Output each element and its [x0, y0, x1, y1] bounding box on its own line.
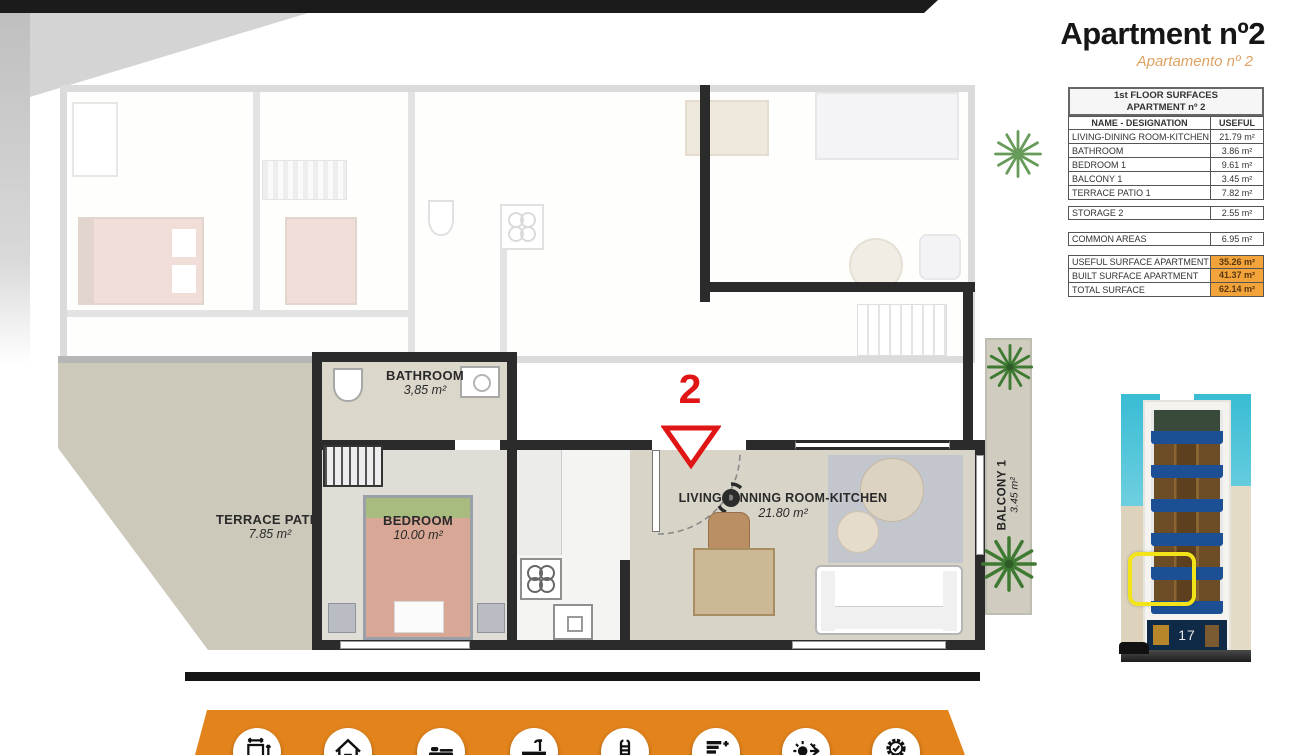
storage-row: STORAGE 2 2.55 m² — [1068, 206, 1264, 220]
building-elevation-thumbnail: 17 — [1115, 388, 1257, 672]
table-row: TERRACE PATIO 1 7.82 m² — [1068, 186, 1264, 200]
page-title: Apartment nº2 — [885, 16, 1265, 52]
house-icon — [332, 735, 364, 755]
building-floor — [1151, 512, 1223, 546]
building-floor — [1151, 410, 1223, 444]
surface-dimensions-icon — [241, 735, 273, 755]
title-block: Apartment nº2 Apartamento nº 2 — [885, 16, 1265, 70]
bathtub-icon — [518, 735, 550, 755]
ground-floor: 17 — [1147, 620, 1227, 650]
nightstand — [328, 603, 356, 633]
surfaces-header-line1: 1st FLOOR SURFACES — [1070, 90, 1262, 102]
unit-number-marker: 2 — [662, 367, 718, 411]
total-row-built: BUILT SURFACE APARTMENT 41.37 m² — [1068, 269, 1264, 283]
bathroom-label: BATHROOM 3,85 m² — [335, 368, 515, 398]
shop-window — [1153, 625, 1169, 645]
building-floor — [1151, 444, 1223, 478]
highlighted-unit-box — [1128, 552, 1196, 606]
stove — [520, 558, 562, 600]
page-subtitle: Apartamento nº 2 — [885, 53, 1265, 70]
floor-plan: TERRACE PATIO 7.85 m² BATHROOM — [45, 75, 1037, 663]
entrance-triangle-marker — [661, 425, 721, 469]
surfaces-columns-row: NAME - DESIGNATION USEFUL — [1068, 116, 1264, 130]
kitchen-cabinets — [517, 450, 562, 555]
table-row: BATHROOM 3.86 m² — [1068, 144, 1264, 158]
corner-decoration-strip — [0, 13, 30, 365]
fade-overlay — [60, 85, 975, 363]
nightstand — [477, 603, 505, 633]
surfaces-table: 1st FLOOR SURFACES APARTMENT nº 2 NAME -… — [1068, 87, 1264, 297]
bed-icon — [425, 735, 457, 755]
common-areas-row: COMMON AREAS 6.95 m² — [1068, 232, 1264, 246]
plan-sheet: Apartment nº2 Apartamento nº 2 1st FLOOR… — [0, 0, 1290, 755]
total-row-useful: USEFUL SURFACE APARTMENT 35.26 m² — [1068, 255, 1264, 269]
col-useful: USEFUL — [1211, 118, 1263, 128]
entrance-door — [1205, 625, 1219, 647]
street-number: 17 — [1178, 627, 1196, 643]
wardrobe-hatch — [323, 445, 383, 487]
total-row-total: TOTAL SURFACE 62.14 m² — [1068, 283, 1264, 297]
sofa — [815, 565, 963, 635]
footer-divider-line — [185, 672, 980, 681]
quality-badge-icon — [880, 735, 912, 755]
table-row: BEDROOM 1 9.61 m² — [1068, 158, 1264, 172]
surfaces-table-header: 1st FLOOR SURFACES APARTMENT nº 2 — [1068, 87, 1264, 116]
pool-ladder-icon — [609, 735, 641, 755]
footer-amenities-bar — [195, 710, 965, 755]
plant-icon — [980, 533, 1038, 595]
surfaces-header-line2: APARTMENT nº 2 — [1070, 102, 1262, 114]
energy-rating-icon — [700, 735, 732, 755]
car-silhouette — [1119, 642, 1149, 654]
col-name: NAME - DESIGNATION — [1069, 117, 1211, 129]
kitchen-sink — [553, 604, 593, 640]
bedroom-label: BEDROOM 10.00 m² — [338, 513, 498, 543]
table-row: LIVING-DINING ROOM-KITCHEN 21.79 m² — [1068, 130, 1264, 144]
footer-orange-band — [195, 710, 965, 755]
plant-icon — [993, 127, 1043, 181]
living-label: LIVING-DINNING ROOM-KITCHEN 21.80 m² — [658, 491, 908, 521]
plant-icon — [986, 341, 1034, 393]
building-floor — [1151, 478, 1223, 512]
dining-table — [693, 548, 775, 616]
table-row: BALCONY 1 3.45 m² — [1068, 172, 1264, 186]
top-black-bar — [0, 0, 938, 13]
climate-control-icon — [790, 735, 822, 755]
